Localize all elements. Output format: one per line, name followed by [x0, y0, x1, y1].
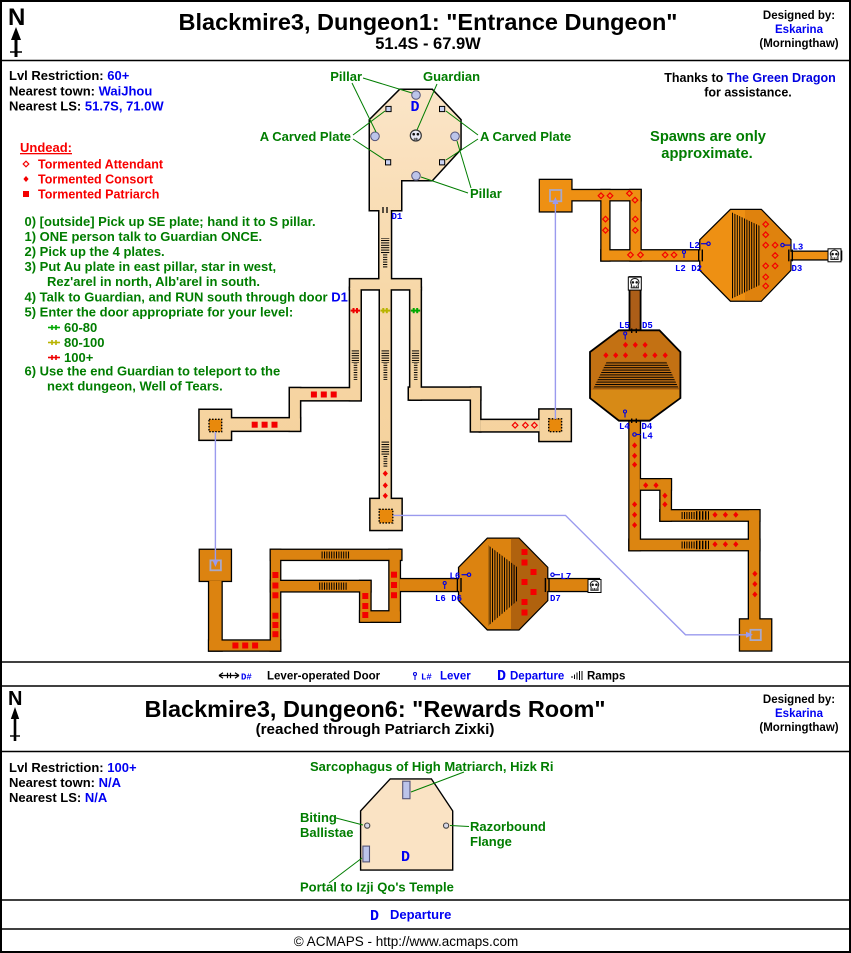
svg-text:next dungeon, Well of Tears.: next dungeon, Well of Tears. [47, 379, 223, 394]
svg-text:Lvl Restriction: 100+: Lvl Restriction: 100+ [9, 760, 137, 775]
svg-text:Flange: Flange [470, 834, 512, 849]
svg-text:D: D [497, 668, 506, 685]
svg-text:D: D [411, 99, 420, 116]
svg-text:A Carved Plate: A Carved Plate [480, 129, 571, 144]
svg-text:Eskarina: Eskarina [775, 24, 824, 36]
svg-text:Spawns are only: Spawns are only [650, 129, 767, 145]
svg-text:for assistance.: for assistance. [704, 86, 792, 100]
svg-text:D7: D7 [550, 594, 561, 604]
svg-text:Thanks to The Green Dragon: Thanks to The Green Dragon [664, 71, 836, 85]
svg-text:L4: L4 [619, 422, 630, 432]
svg-text:Pillar: Pillar [330, 69, 362, 84]
svg-text:N: N [8, 688, 22, 710]
svg-text:D5: D5 [642, 321, 653, 331]
svg-text:D#: D# [241, 673, 252, 683]
svg-text:80-100: 80-100 [64, 335, 104, 350]
svg-text:Tormented Attendant: Tormented Attendant [38, 158, 164, 172]
svg-text:3) Put Au plate in east pillar: 3) Put Au plate in east pillar, star in … [25, 259, 277, 274]
svg-text:Rez'arel in north, Alb'arel in: Rez'arel in north, Alb'arel in south. [47, 274, 260, 289]
svg-text:Eskarina: Eskarina [775, 708, 824, 720]
svg-text:Lvl Restriction: 60+: Lvl Restriction: 60+ [9, 68, 130, 83]
svg-text:L7: L7 [561, 572, 572, 582]
svg-text:4) Talk to Guardian, and RUN s: 4) Talk to Guardian, and RUN south throu… [25, 290, 352, 305]
svg-text:Guardian: Guardian [423, 69, 480, 84]
svg-text:0) [outside] Pick up SE plate;: 0) [outside] Pick up SE plate; hand it t… [25, 214, 316, 229]
svg-text:© ACMAPS - http://www.acmaps.c: © ACMAPS - http://www.acmaps.com [294, 934, 519, 949]
svg-text:Blackmire3, Dungeon1: "Entranc: Blackmire3, Dungeon1: "Entrance Dungeon" [179, 9, 678, 35]
svg-text:Undead:: Undead: [20, 140, 72, 155]
svg-text:1) ONE person talk to Guardian: 1) ONE person talk to Guardian ONCE. [25, 229, 263, 244]
svg-text:Ramps: Ramps [587, 671, 625, 683]
svg-text:L5: L5 [619, 321, 630, 331]
svg-text:Tormented Consort: Tormented Consort [38, 173, 154, 187]
svg-text:L6 D6: L6 D6 [435, 594, 462, 604]
svg-text:D4: D4 [642, 422, 653, 432]
svg-text:L2: L2 [689, 241, 700, 251]
svg-text:L3: L3 [793, 243, 804, 253]
svg-text:Pillar: Pillar [470, 186, 502, 201]
svg-text:D1: D1 [392, 212, 403, 222]
svg-text:(reached through Patriarch Zix: (reached through Patriarch Zixki) [256, 721, 495, 738]
svg-text:Designed by:: Designed by: [763, 694, 835, 706]
svg-text:Departure: Departure [390, 907, 451, 922]
svg-text:5) Enter the door appropriate: 5) Enter the door appropriate for your l… [25, 305, 294, 320]
svg-text:(Morningthaw): (Morningthaw) [759, 722, 838, 734]
svg-text:L#: L# [421, 673, 432, 683]
svg-text:Portal to Izji Qo's Temple: Portal to Izji Qo's Temple [300, 880, 454, 895]
svg-text:Nearest LS: 51.7S, 71.0W: Nearest LS: 51.7S, 71.0W [9, 99, 164, 114]
svg-text:100+: 100+ [64, 350, 94, 365]
svg-text:D: D [401, 849, 410, 866]
svg-text:L4: L4 [642, 432, 653, 442]
svg-text:N: N [8, 4, 25, 31]
svg-text:51.4S - 67.9W: 51.4S - 67.9W [375, 35, 481, 53]
svg-text:Nearest LS: N/A: Nearest LS: N/A [9, 790, 108, 805]
svg-text:Designed by:: Designed by: [763, 10, 835, 22]
svg-text:Nearest town: N/A: Nearest town: N/A [9, 775, 122, 790]
svg-text:Departure: Departure [510, 671, 564, 683]
svg-text:Ballistae: Ballistae [300, 825, 353, 840]
svg-text:Sarcophagus of High Matriarch,: Sarcophagus of High Matriarch, Hizk Ri [310, 759, 553, 774]
svg-text:Tormented Patriarch: Tormented Patriarch [38, 188, 159, 202]
svg-text:6) Use the end Guardian to tel: 6) Use the end Guardian to teleport to t… [25, 364, 281, 379]
svg-text:2) Pick up the 4 plates.: 2) Pick up the 4 plates. [25, 244, 165, 259]
svg-text:L6: L6 [450, 572, 461, 582]
svg-text:Biting: Biting [300, 810, 337, 825]
svg-text:L2 D2: L2 D2 [675, 264, 702, 274]
svg-text:D: D [370, 908, 379, 925]
svg-text:Blackmire3, Dungeon6: "Rewards: Blackmire3, Dungeon6: "Rewards Room" [144, 696, 605, 722]
svg-text:A Carved Plate: A Carved Plate [260, 129, 351, 144]
svg-text:Lever: Lever [440, 671, 471, 683]
svg-text:D3: D3 [792, 264, 803, 274]
svg-text:Lever-operated Door: Lever-operated Door [267, 671, 381, 683]
svg-text:approximate.: approximate. [661, 146, 752, 162]
svg-text:Nearest town: WaiJhou: Nearest town: WaiJhou [9, 84, 152, 99]
svg-text:(Morningthaw): (Morningthaw) [759, 38, 838, 50]
svg-text:Razorbound: Razorbound [470, 819, 546, 834]
svg-text:60-80: 60-80 [64, 320, 97, 335]
